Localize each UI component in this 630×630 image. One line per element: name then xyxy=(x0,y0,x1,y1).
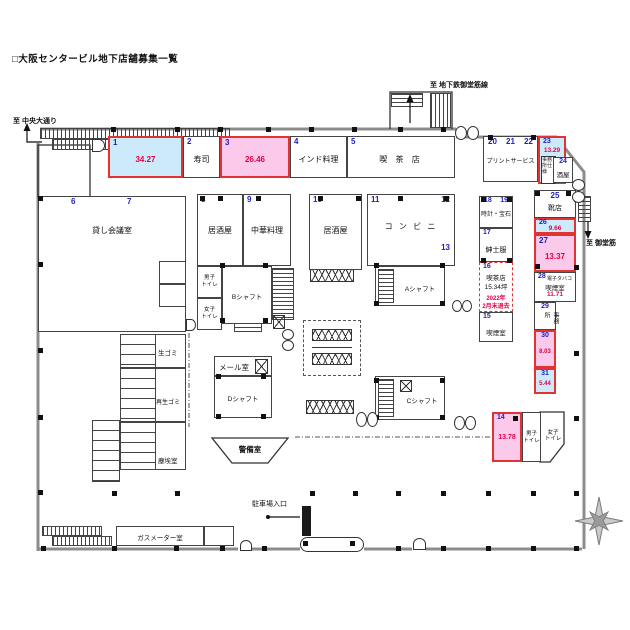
pillar xyxy=(535,264,540,269)
unit-number: 24 xyxy=(554,158,572,165)
pillar xyxy=(38,262,43,267)
unit-name: 喫 茶 店 xyxy=(348,154,454,165)
unit-name: 紳士服 xyxy=(480,245,512,255)
unit-4: 4 インド料理 xyxy=(290,136,347,178)
unit-26: 26 9.66 xyxy=(534,218,576,234)
pillar xyxy=(535,191,540,196)
door-icon xyxy=(413,538,426,550)
rental-meeting-room: 6 7 貸し会議室 xyxy=(38,196,186,332)
parking-entrance-label: 駐車場入口 xyxy=(252,499,287,509)
unit-2: 2 寿司 xyxy=(183,136,220,178)
door-icon xyxy=(240,540,252,551)
unit-10: 10 居酒屋 xyxy=(309,194,362,270)
toilet-label: トイレ xyxy=(523,438,540,444)
shaft-label: Bシャフト xyxy=(223,291,271,301)
womens-toilet: 女子 トイレ xyxy=(197,298,222,330)
escalator-lower xyxy=(306,400,354,414)
pillar xyxy=(261,374,266,379)
pillar xyxy=(481,258,486,263)
unit-name: 喫煙室 xyxy=(480,327,512,337)
pillar xyxy=(38,415,43,420)
unit-name: 靴店 xyxy=(535,203,575,213)
escalator-center-2 xyxy=(312,353,352,365)
subway-stairs xyxy=(430,93,451,128)
pillar xyxy=(112,546,117,551)
pillar xyxy=(574,491,579,496)
pillar xyxy=(440,263,445,268)
pillar xyxy=(266,127,271,132)
arrow-parking xyxy=(266,515,300,519)
subway-stairs-upper xyxy=(391,93,423,107)
unit-name: 電子タバコ xyxy=(547,275,572,282)
door-icon xyxy=(282,329,294,340)
shaft-a: Aシャフト xyxy=(375,266,445,306)
pillar xyxy=(486,491,491,496)
unit-number: 27 xyxy=(539,236,548,245)
unit-name: プリントサービス xyxy=(484,156,537,165)
unit-area: 34.27 xyxy=(110,155,181,164)
unit-8: 8 居酒屋 xyxy=(197,194,243,266)
pillar xyxy=(310,491,315,496)
unit-31: 31 5.44 xyxy=(534,368,556,394)
toilet-label: トイレ xyxy=(545,436,562,442)
service-room xyxy=(204,526,234,546)
compass-icon xyxy=(575,497,623,545)
to-subway-midosuji-label: 至 地下鉄御堂筋線 xyxy=(430,80,488,90)
toilet-label: 男子 xyxy=(523,431,540,437)
pillar xyxy=(574,265,579,270)
pillar xyxy=(256,196,261,201)
door-icon xyxy=(467,126,479,140)
room-label: ガスメーター室 xyxy=(117,532,203,542)
unit-number: 9 xyxy=(247,195,251,204)
storage-cells xyxy=(120,334,156,368)
unit-number: 5 xyxy=(351,137,355,146)
pillar xyxy=(112,491,117,496)
toilet-label: 女子 xyxy=(547,430,558,436)
unit-area: 11.71 xyxy=(535,291,575,298)
pillar xyxy=(481,197,486,202)
pillar xyxy=(263,318,268,323)
mail-room: メール室 xyxy=(214,356,272,376)
pillar xyxy=(216,414,221,419)
stairs-bottom-left xyxy=(42,526,102,536)
unit-name: コ ン ビ ニ xyxy=(368,221,454,232)
to-midosuji-label: 至 御堂筋 xyxy=(586,238,616,248)
unit-area: 26.46 xyxy=(222,155,288,164)
door-icon xyxy=(454,416,465,430)
pillar xyxy=(398,196,403,201)
unit-name: 事務所 xyxy=(542,312,560,329)
unit-number: 16 xyxy=(483,263,491,270)
pillar xyxy=(318,196,323,201)
unit-number: 3 xyxy=(225,138,229,147)
door-icon xyxy=(282,340,294,351)
pillar xyxy=(263,263,268,268)
toilet-label: 男子 xyxy=(198,275,221,281)
pillar xyxy=(488,135,493,140)
pillar xyxy=(356,196,361,201)
pillar xyxy=(262,546,267,551)
unit-name: インド料理 xyxy=(291,154,346,165)
dust-room: 塵埃室 xyxy=(120,422,186,470)
pillar xyxy=(374,378,379,383)
shaft-label: Dシャフト xyxy=(215,393,271,403)
pillar xyxy=(444,196,449,201)
pillar xyxy=(200,196,205,201)
unit-name: 居酒屋 xyxy=(198,225,242,236)
unit-number: 29 xyxy=(535,303,555,310)
pillar xyxy=(303,541,308,546)
unit-area: 13.29 xyxy=(540,147,564,154)
unit-number: 13 xyxy=(441,243,450,252)
pillar xyxy=(352,127,357,132)
pillar xyxy=(513,416,518,421)
door-icon xyxy=(462,300,472,312)
pillar xyxy=(353,491,358,496)
escalator-divider xyxy=(312,347,352,348)
pillar xyxy=(374,263,379,268)
unit-area: 13.78 xyxy=(494,434,520,441)
raw-garbage-room: 生ゴミ xyxy=(120,334,186,368)
unit-24: 24 酒屋 xyxy=(553,157,573,183)
pillar xyxy=(218,127,223,132)
toilet-label: 女子 xyxy=(198,307,221,313)
pillar xyxy=(531,546,536,551)
stairs-bottom-left-2 xyxy=(52,536,112,546)
storage-cells xyxy=(120,368,156,422)
unit-number: 17 xyxy=(483,229,491,236)
room-label: 生ゴミ xyxy=(158,347,178,357)
storage-cells xyxy=(120,422,156,470)
hatch-box-icon xyxy=(400,380,412,392)
pillar xyxy=(566,191,571,196)
pillar xyxy=(350,541,355,546)
pillar xyxy=(261,414,266,419)
pillar xyxy=(440,415,445,420)
door-icon xyxy=(452,300,462,312)
security-room-label: 警備室 xyxy=(222,444,278,455)
gas-meter-room: ガスメーター室 xyxy=(116,526,204,546)
pillar xyxy=(531,135,536,140)
unit-9: 9 中華料理 xyxy=(243,194,291,266)
room-label: 再生ゴミ xyxy=(156,397,180,406)
pillar xyxy=(220,546,225,551)
unit-number: 21 xyxy=(506,137,515,146)
pillar xyxy=(396,546,401,551)
shaft-label: Aシャフト xyxy=(386,283,454,293)
parking-gate-bar xyxy=(302,506,311,536)
pillar xyxy=(41,546,46,551)
pillar xyxy=(574,546,579,551)
hatch-box-icon xyxy=(273,315,285,329)
pillar xyxy=(174,546,179,551)
escalator-center-1 xyxy=(312,329,352,341)
floor-plan: □大阪センタービル地下店舗募集一覧 至 中央大通り 至 地下鉄御堂筋線 至 御堂… xyxy=(0,0,630,630)
unit-17: 17 紳士服 xyxy=(479,228,513,262)
unit-15: 15 喫煙室 xyxy=(479,312,513,342)
unit-note: 2月末退去 xyxy=(480,301,512,310)
unit-29: 29 事務所 xyxy=(534,302,556,330)
unit-27: 27 13.37 xyxy=(534,234,576,272)
shaft-b: Bシャフト xyxy=(222,266,272,324)
recycle-garbage-room: 再生ゴミ xyxy=(120,368,186,422)
pillar xyxy=(216,374,221,379)
unit-name: 寿司 xyxy=(184,154,219,165)
pillar xyxy=(440,301,445,306)
pillar xyxy=(486,546,491,551)
unit-28: 28 電子タバコ 喫煙室 11.71 xyxy=(534,272,576,302)
pillar xyxy=(175,491,180,496)
unit-number: 2 xyxy=(187,137,191,146)
pillar xyxy=(440,378,445,383)
door-icon xyxy=(465,416,476,430)
unit-size: 15.34坪 xyxy=(480,281,512,291)
door-icon xyxy=(455,126,467,140)
unit-3: 3 26.46 xyxy=(220,136,290,178)
toilet-label: トイレ xyxy=(198,282,221,288)
pillar xyxy=(507,197,512,202)
door-icon xyxy=(92,139,105,152)
mens-toilet-2: 男子 トイレ xyxy=(522,412,541,462)
room-label: メール室 xyxy=(219,362,249,373)
unit-11-13: 11 12 コ ン ビ ニ 13 xyxy=(367,194,455,266)
pillar xyxy=(220,318,225,323)
shaft-label: Cシャフト xyxy=(388,395,456,405)
unit-number: 11 xyxy=(371,195,379,204)
unit-name: 時計・宝石 xyxy=(480,209,512,218)
pillar xyxy=(111,127,116,132)
inner-room xyxy=(159,283,186,307)
pillar xyxy=(38,196,43,201)
inner-room xyxy=(159,261,186,285)
pillar xyxy=(220,263,225,268)
pillar xyxy=(38,490,43,495)
pillar xyxy=(441,127,446,132)
pillar xyxy=(531,491,536,496)
unit-number: 1 xyxy=(113,138,117,147)
door-icon xyxy=(356,412,367,427)
stairs-shaft-b xyxy=(272,268,294,320)
mens-toilet: 男子 トイレ xyxy=(197,266,222,298)
unit-area: 8.03 xyxy=(536,349,554,355)
unit-area: 9.66 xyxy=(536,225,574,232)
room-label: 貸し会議室 xyxy=(39,225,185,236)
unit-name: 酒屋 xyxy=(554,169,572,179)
unit-number: 4 xyxy=(294,137,298,146)
pillar xyxy=(175,127,180,132)
escalator-center-block xyxy=(303,320,361,376)
unit-number: 6 xyxy=(71,197,75,206)
room-label: 塵埃室 xyxy=(158,455,178,465)
to-chuo-odori-label: 至 中央大通り xyxy=(13,116,57,126)
pillar xyxy=(574,416,579,421)
unit-name: 中華料理 xyxy=(244,225,290,236)
unit-number: 7 xyxy=(127,197,131,206)
shaft-d: Dシャフト xyxy=(214,376,272,418)
unit-30: 30 8.03 xyxy=(534,330,556,368)
unit-5: 5 喫 茶 店 xyxy=(347,136,455,178)
unit-name: 居酒屋 xyxy=(310,225,361,236)
unit-number: 14 xyxy=(497,414,505,421)
pillar xyxy=(398,127,403,132)
pillar xyxy=(38,348,43,353)
pillar xyxy=(441,491,446,496)
unit-number: 31 xyxy=(536,370,554,377)
storage-cells xyxy=(92,420,120,482)
toilet-label: トイレ xyxy=(198,314,221,320)
unit-1: 1 34.27 xyxy=(108,136,183,178)
door-icon xyxy=(367,412,378,427)
escalator-upper xyxy=(310,268,354,282)
unit-16: 16 喫茶店 15.34坪 2022年 2月末退去 xyxy=(479,262,513,312)
hatch-box-icon xyxy=(255,359,268,374)
unit-20-22: 20 21 22 プリントサービス xyxy=(483,136,538,182)
unit-area: 13.37 xyxy=(536,252,574,261)
unit-area: 5.44 xyxy=(536,381,554,387)
pillar xyxy=(441,546,446,551)
door-icon xyxy=(572,179,585,191)
pillar xyxy=(396,491,401,496)
pillar xyxy=(374,301,379,306)
unit-number: 30 xyxy=(536,332,554,339)
pillar xyxy=(218,196,223,201)
door-icon xyxy=(186,319,196,331)
shaft-c: Cシャフト xyxy=(375,376,445,420)
page-title: □大阪センタービル地下店舗募集一覧 xyxy=(12,51,178,65)
pillar xyxy=(574,351,579,356)
unit-number: 15 xyxy=(483,313,491,320)
unit-number: 23 xyxy=(543,138,551,145)
door-icon xyxy=(572,191,585,203)
pillar xyxy=(309,127,314,132)
pillar xyxy=(507,258,512,263)
unit-number: 28 xyxy=(538,273,546,280)
womens-toilet-2: 女子 トイレ xyxy=(541,430,565,443)
